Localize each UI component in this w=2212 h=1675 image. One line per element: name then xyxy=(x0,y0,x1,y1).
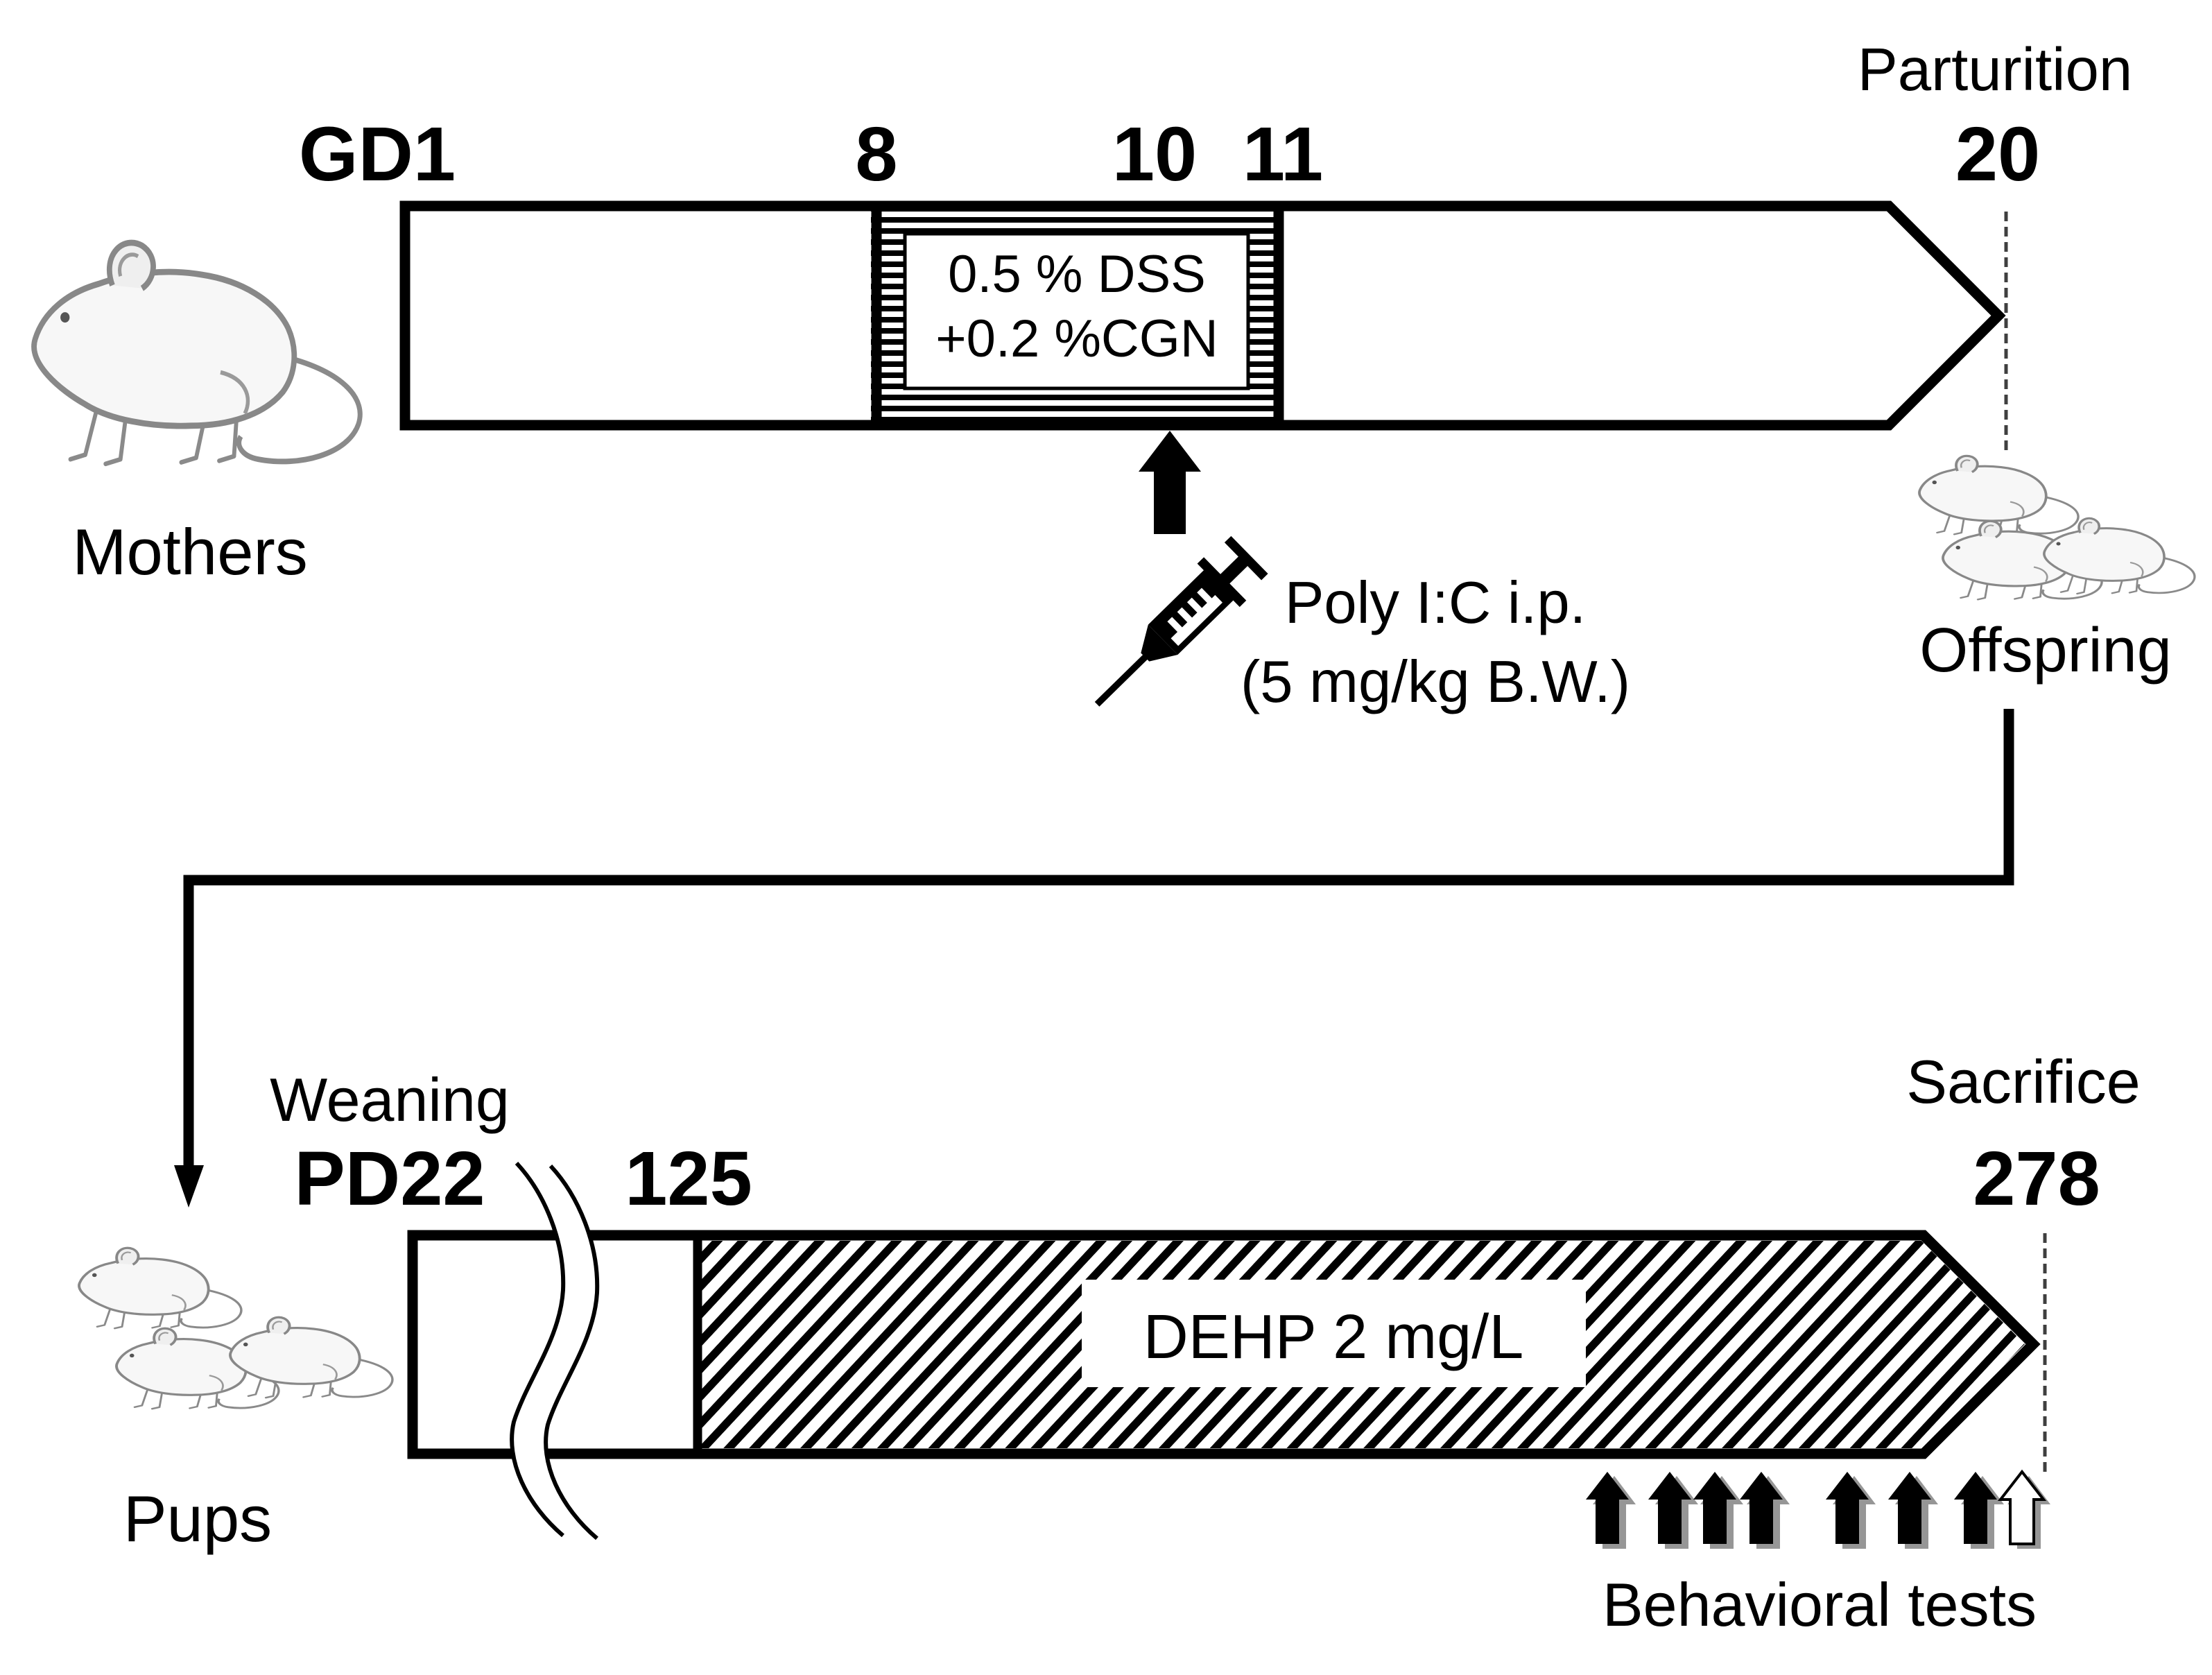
svg-text:Parturition: Parturition xyxy=(1858,36,2133,103)
svg-text:0.5 % DSS: 0.5 % DSS xyxy=(948,245,1206,304)
svg-text:8: 8 xyxy=(855,112,897,197)
svg-text:Mothers: Mothers xyxy=(72,515,308,588)
svg-text:+0.2 %CGN: +0.2 %CGN xyxy=(935,309,1218,368)
svg-text:Offspring: Offspring xyxy=(1919,616,2172,685)
svg-text:(5 mg/kg B.W.): (5 mg/kg B.W.) xyxy=(1241,649,1630,715)
svg-text:Sacrifice: Sacrifice xyxy=(1906,1047,2140,1116)
svg-text:Poly I:C i.p.: Poly I:C i.p. xyxy=(1285,570,1587,636)
svg-text:PD22: PD22 xyxy=(294,1136,485,1221)
svg-text:GD1: GD1 xyxy=(299,112,456,197)
svg-text:278: 278 xyxy=(1973,1136,2100,1221)
svg-text:DEHP 2 mg/L: DEHP 2 mg/L xyxy=(1143,1303,1524,1372)
svg-text:Pups: Pups xyxy=(123,1482,272,1555)
svg-text:10: 10 xyxy=(1112,112,1197,197)
svg-text:11: 11 xyxy=(1243,112,1323,197)
svg-text:125: 125 xyxy=(625,1136,752,1221)
svg-text:20: 20 xyxy=(1955,112,2040,197)
svg-text:Behavioral tests: Behavioral tests xyxy=(1602,1570,2037,1639)
svg-text:Weaning: Weaning xyxy=(270,1065,510,1134)
